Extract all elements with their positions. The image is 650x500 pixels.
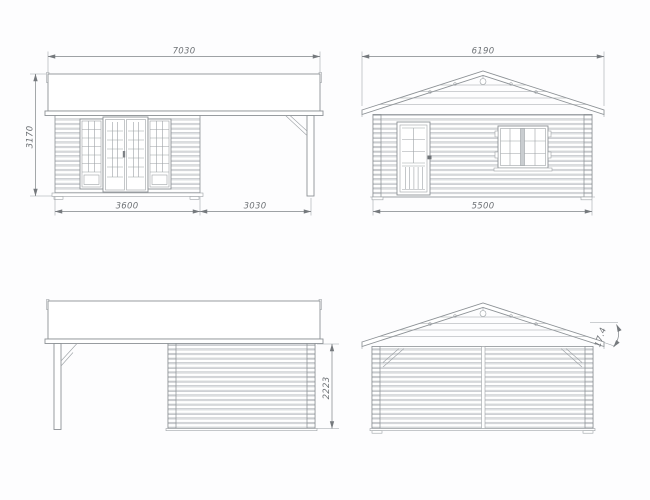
view-rear-gable: 17.4	[362, 303, 619, 433]
dim-front-roof-width: 7030	[173, 47, 196, 57]
side-foundation	[370, 197, 595, 200]
front-foundation	[52, 193, 203, 199]
side-window	[494, 126, 552, 171]
rear-gable-wall	[370, 347, 595, 434]
dim-side-base-width: 5500	[472, 202, 495, 212]
rear-dim-wall-height: 2223	[317, 344, 339, 429]
door-handle	[123, 151, 125, 158]
dim-front-canopy-width: 3030	[244, 202, 267, 212]
dim-roof-pitch: 17.4	[593, 326, 609, 348]
corner-log-ends-right	[585, 347, 593, 429]
dim-front-cabin-width: 3600	[116, 202, 139, 212]
rear-gable-roof	[362, 303, 604, 349]
door-handle	[428, 156, 432, 160]
corner-log-ends-left	[372, 347, 380, 429]
corner-log-ends-left	[373, 115, 381, 198]
front-window-right	[148, 119, 171, 189]
front-dim-bottom: 3600 3030	[55, 197, 311, 216]
view-rear-canopy: 2223	[45, 300, 339, 431]
wall-center-joint	[482, 347, 486, 429]
front-dim-roof-width: 7030	[48, 47, 320, 73]
roof-finial	[480, 311, 486, 317]
dim-rear-wall-height: 2223	[322, 377, 332, 400]
corner-log-ends-right	[584, 115, 592, 198]
rear-canopy-post	[54, 344, 77, 430]
front-double-door	[103, 117, 148, 192]
dim-side-roof-width: 6190	[472, 47, 495, 57]
front-roof	[45, 73, 323, 116]
rear-roof	[45, 300, 323, 344]
window-mullion	[521, 129, 525, 166]
side-door	[397, 122, 432, 195]
rear-wall	[166, 344, 317, 431]
drawing-sheet: 7030 3170 3600 3030	[0, 0, 650, 500]
corner-log-ends-left	[168, 344, 176, 429]
front-canopy-post	[286, 116, 315, 197]
view-side-elevation: 6190 5500	[362, 47, 604, 216]
window-sill	[494, 168, 552, 171]
corner-log-ends-right	[307, 344, 315, 429]
technical-drawing-canvas: 7030 3170 3600 3030	[0, 0, 650, 500]
side-dim-base-width: 5500	[373, 200, 592, 216]
front-window-left	[80, 119, 103, 189]
side-roof	[362, 71, 604, 117]
roof-finial	[480, 79, 486, 85]
dim-front-height: 3170	[26, 126, 36, 149]
view-front-elevation: 7030 3170 3600 3030	[26, 47, 324, 216]
